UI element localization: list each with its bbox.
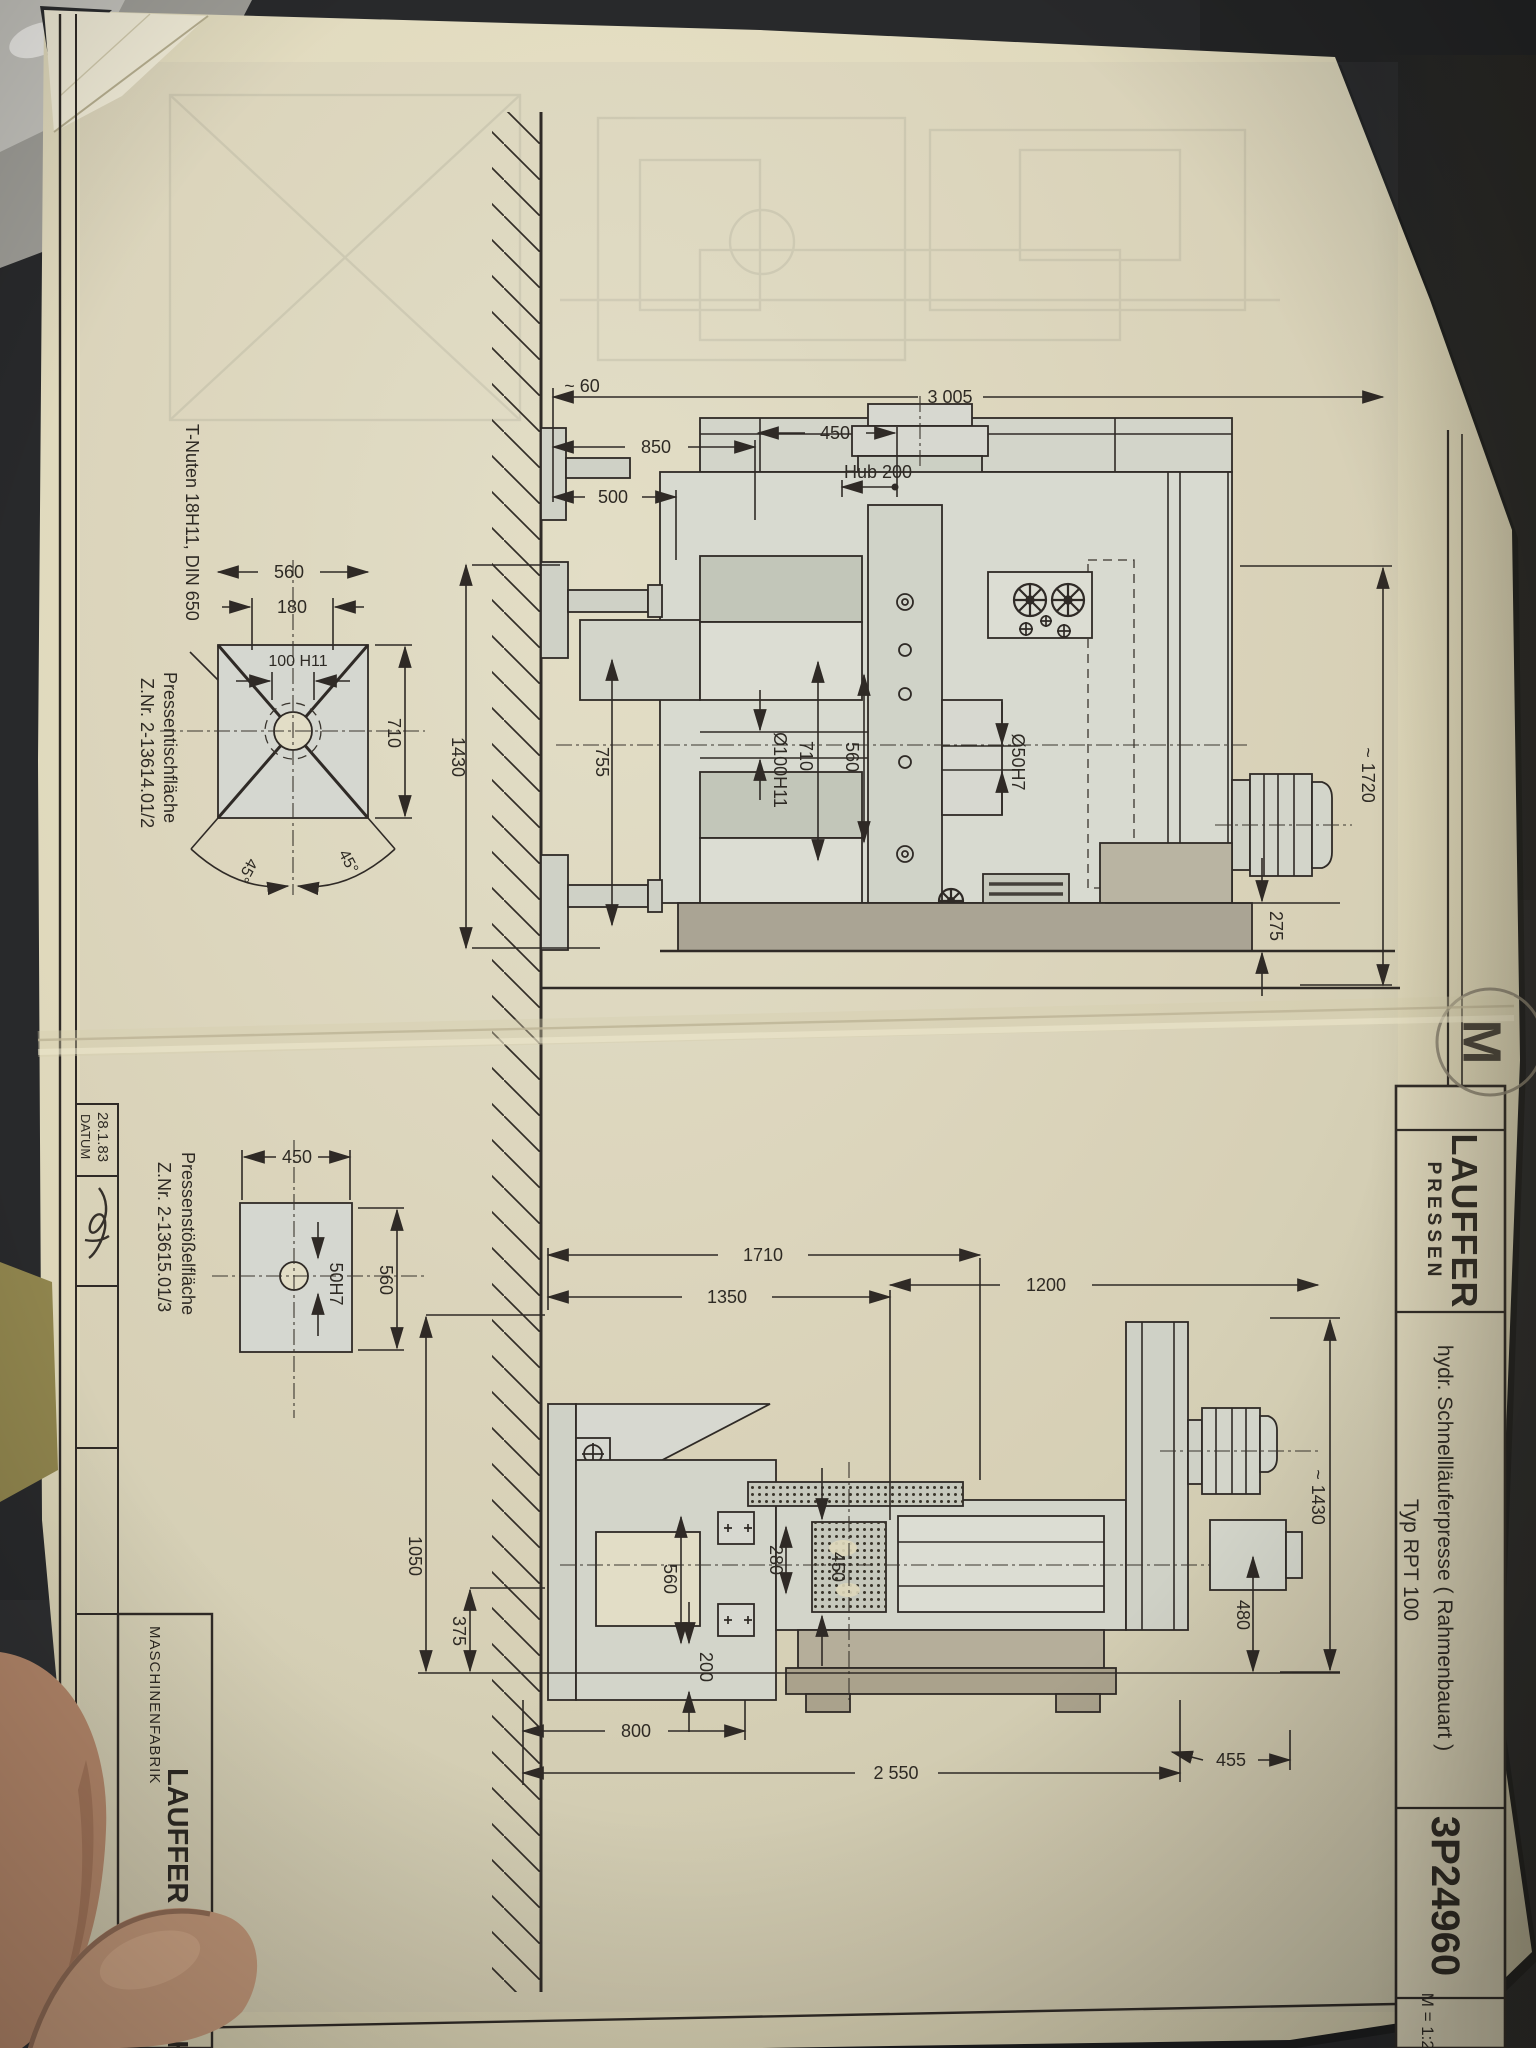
photo-of-technical-drawing: ~ 60 3 005 850 450 Hub 200 500 1430 755 … <box>0 0 1536 2048</box>
vignette <box>0 0 1536 2048</box>
